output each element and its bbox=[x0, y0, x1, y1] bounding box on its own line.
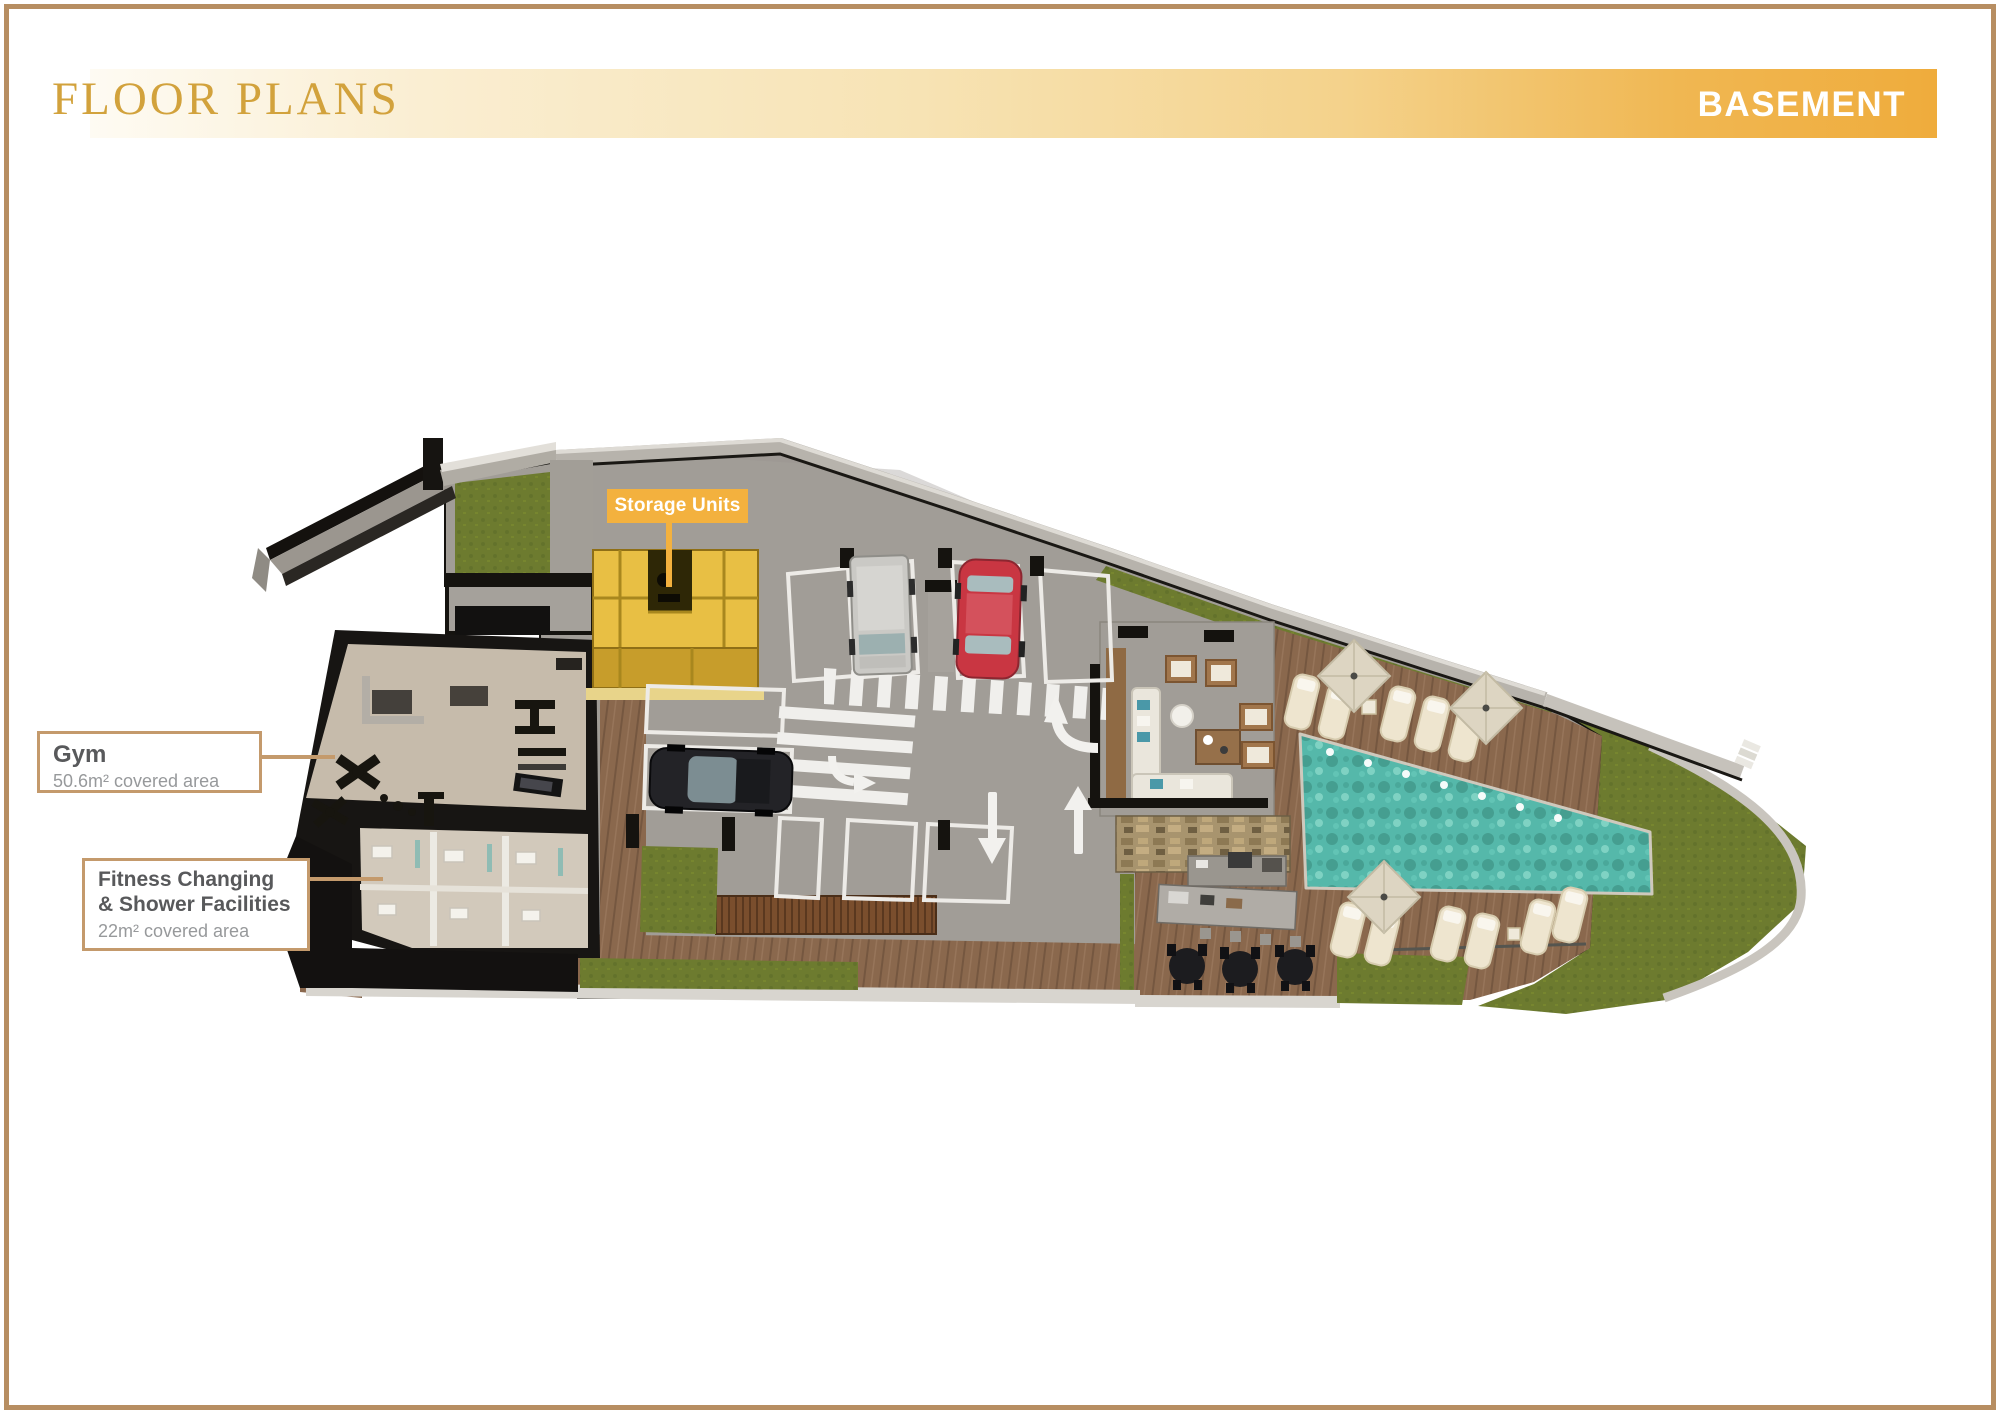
storage-pointer-line bbox=[666, 523, 672, 587]
storage-units-callout: Storage Units bbox=[607, 489, 748, 523]
lounge-area bbox=[1088, 622, 1274, 816]
white-van bbox=[846, 555, 918, 675]
fitness-title-line1: Fitness Changing bbox=[98, 868, 294, 893]
wood-walkway bbox=[600, 672, 646, 944]
gym-callout: Gym 50.6m² covered area bbox=[37, 731, 262, 793]
back-of-house bbox=[447, 585, 593, 635]
bar-island bbox=[1157, 884, 1297, 929]
page-title: FLOOR PLANS bbox=[52, 60, 400, 138]
storage-units-highlight bbox=[586, 550, 764, 700]
gym-connector-line bbox=[261, 755, 335, 759]
gym-fitness-block bbox=[270, 630, 600, 992]
fitness-callout: Fitness Changing & Shower Facilities 22m… bbox=[82, 858, 310, 951]
console-table bbox=[1106, 648, 1126, 808]
black-car bbox=[649, 744, 793, 818]
coffee-table bbox=[1196, 730, 1240, 764]
parking-column bbox=[928, 588, 954, 672]
lawn-parking-patch bbox=[640, 846, 718, 934]
lawn-bar-edge bbox=[1120, 874, 1134, 996]
gym-title: Gym bbox=[53, 741, 246, 769]
lawn-upper-left bbox=[455, 472, 550, 575]
fitness-area-text: 22m² covered area bbox=[98, 921, 294, 942]
floor-plan-rendering bbox=[0, 0, 2000, 1414]
stair-void bbox=[455, 606, 550, 635]
fitness-title-line2: & Shower Facilities bbox=[98, 893, 294, 918]
fitness-connector-line bbox=[309, 877, 383, 881]
crosswalk-vertical bbox=[772, 700, 916, 818]
side-table bbox=[1171, 705, 1193, 727]
lawn-bottom-strip bbox=[580, 958, 858, 990]
red-car bbox=[952, 559, 1028, 679]
gym-area-text: 50.6m² covered area bbox=[53, 771, 246, 792]
fitness-rooms bbox=[360, 828, 588, 948]
storage-units-label: Storage Units bbox=[614, 495, 740, 517]
